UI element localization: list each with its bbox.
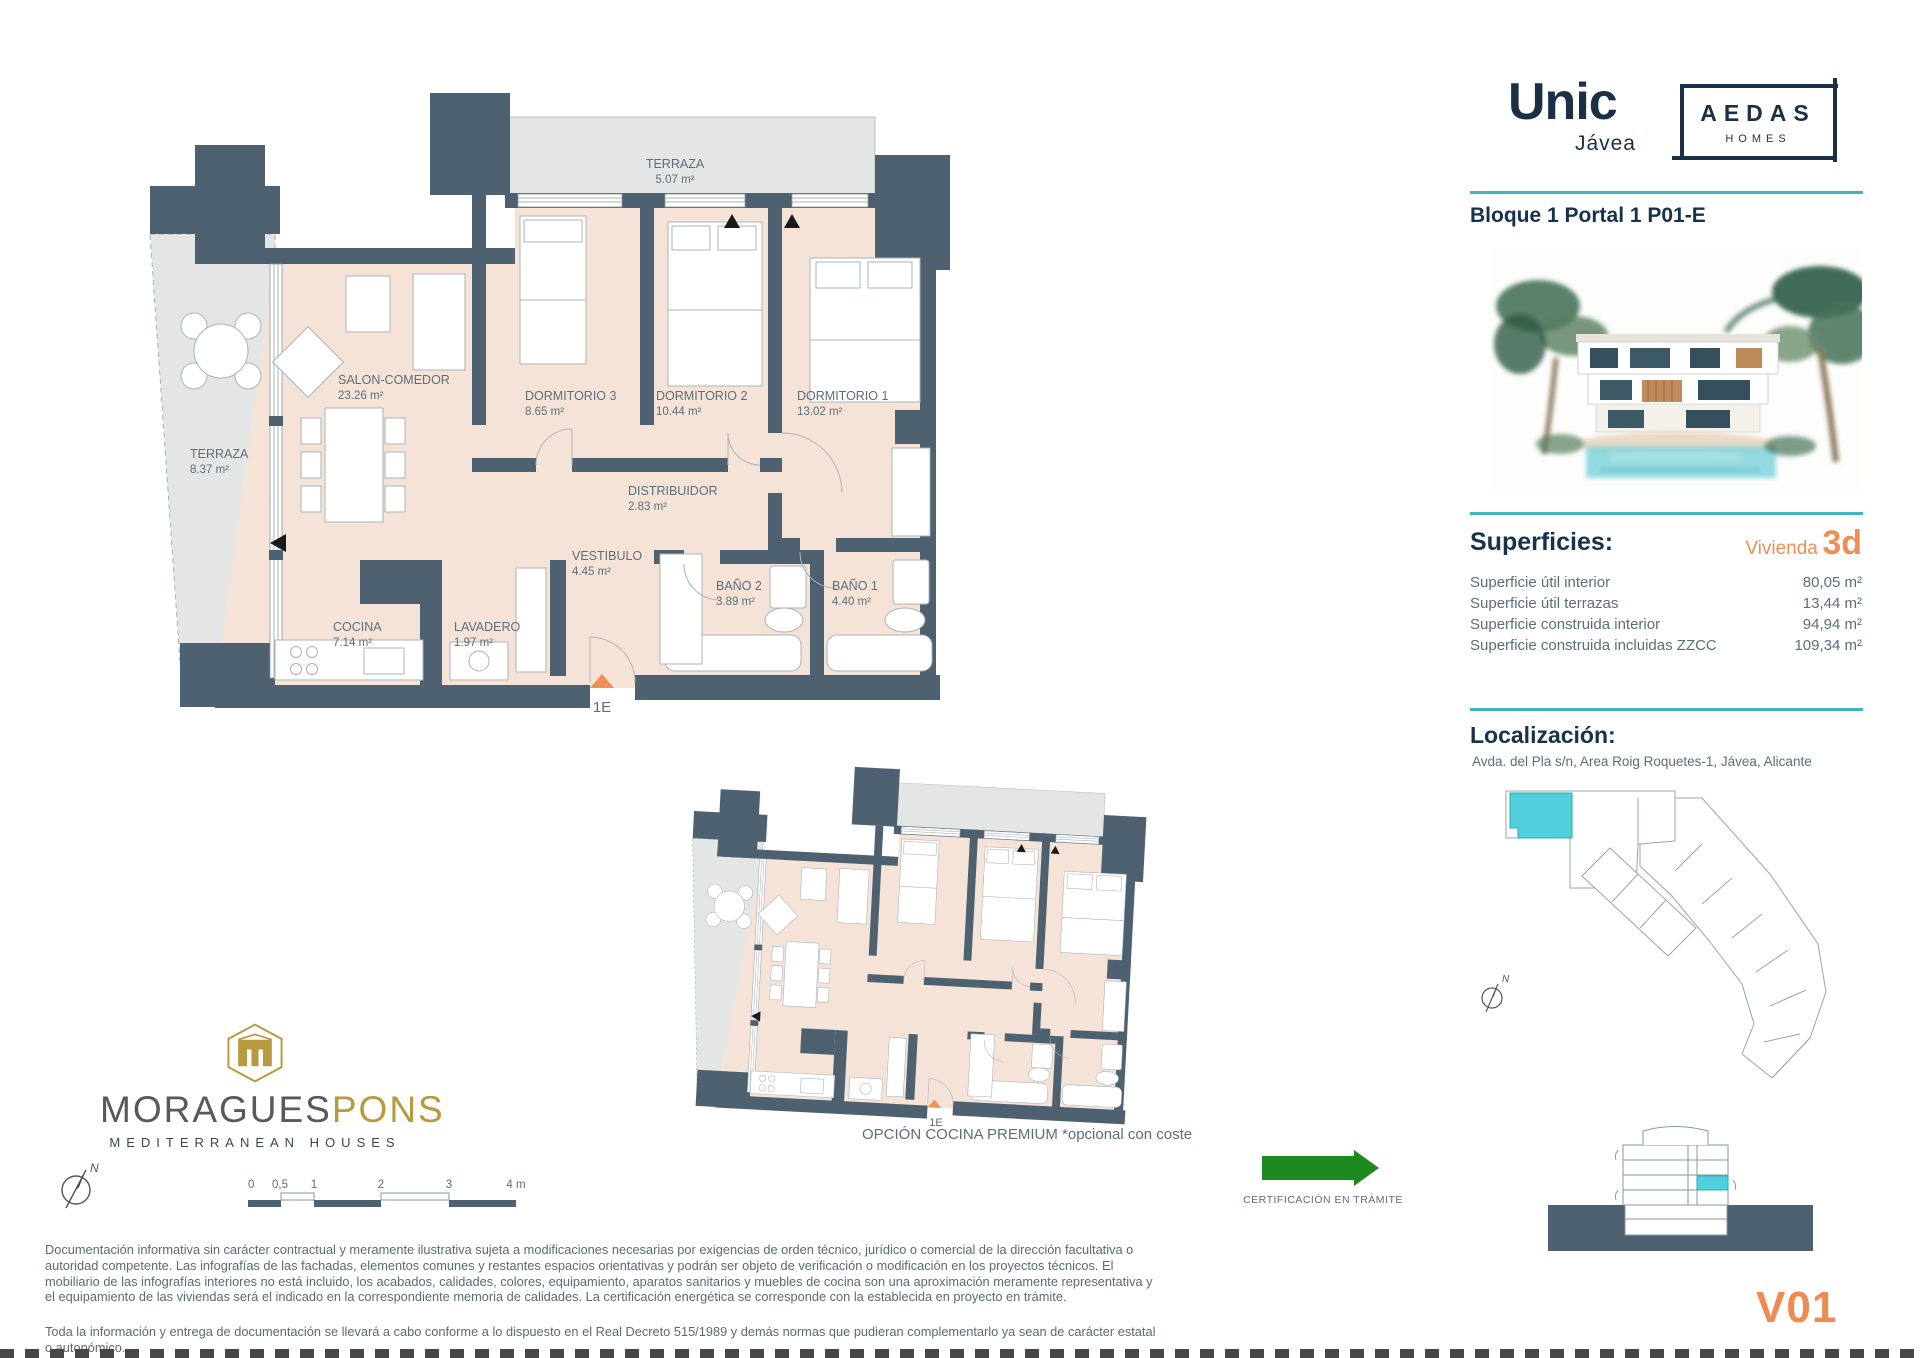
compass-icon: N (52, 1160, 108, 1216)
superficie-label: Superficie útil interior (1470, 572, 1610, 593)
entrance-label: 1E (593, 699, 611, 716)
room-label-terraza-top: TERRAZA (646, 157, 705, 171)
room-area-vestibulo: 4.45 m² (572, 566, 611, 578)
superficie-label: Superficie construida incluidas ZZCC (1470, 635, 1717, 656)
perforation-strip (0, 1349, 1920, 1358)
superficie-value: 94,94 m² (1803, 614, 1862, 635)
certification-label: CERTIFICACIÓN EN TRÁMITE (1238, 1194, 1408, 1206)
room-label-bano2: BAÑO 2 (716, 579, 762, 593)
room-area-dormitorio1: 13.02 m² (797, 406, 843, 418)
divider (1470, 512, 1863, 515)
room-label-terraza-left: TERRAZA (190, 447, 249, 461)
scale-bar: 0 0,5 1 2 3 4 m (246, 1176, 538, 1218)
superficie-value: 80,05 m² (1803, 572, 1862, 593)
vivienda-code: 3d (1822, 524, 1862, 562)
highlighted-unit (1510, 793, 1572, 838)
localizacion-heading: Localización: (1470, 722, 1616, 749)
disclaimer-paragraph-1: Documentación informativa sin carácter c… (45, 1242, 1157, 1305)
building-block (1576, 334, 1780, 432)
superficie-row: Superficie construida interior 94,94 m² (1470, 614, 1862, 635)
logo-part2: PONS (332, 1089, 445, 1130)
superficie-label: Superficie construida interior (1470, 614, 1660, 635)
room-area-bano2: 3.89 m² (716, 596, 755, 608)
room-area-salon: 23.26 m² (338, 390, 384, 402)
superficies-heading: Superficies: (1470, 528, 1613, 557)
room-area-terraza-top: 5.07 m² (656, 174, 695, 186)
logo-part1: MORAGUES (100, 1089, 332, 1130)
building-render (1490, 248, 1862, 492)
superficie-value: 13,44 m² (1803, 593, 1862, 614)
premium-floor-plan: 1E (640, 742, 1185, 1162)
compass-icon: N (1482, 974, 1510, 1012)
north-label: N (90, 1161, 99, 1175)
certification-arrow-icon (1262, 1150, 1380, 1186)
room-label-salon: SALON-COMEDOR (338, 373, 450, 387)
logo-tagline: MEDITERRANEAN HOUSES (100, 1135, 410, 1150)
vivienda-tag: Vivienda 3d (1640, 524, 1862, 563)
scale-tick: 0 (248, 1179, 254, 1191)
superficie-row: Superficie útil interior 80,05 m² (1470, 572, 1862, 593)
room-area-dormitorio3: 8.65 m² (525, 406, 564, 418)
room-label-bano1: BAÑO 1 (832, 579, 878, 593)
scale-tick: 0,5 (272, 1179, 288, 1191)
building-section (1540, 1098, 1830, 1266)
north-label: N (1502, 974, 1510, 985)
aedas-homes-logo: AEDAS HOMES (1672, 74, 1852, 174)
superficie-label: Superficie útil terrazas (1470, 593, 1618, 614)
room-label-vestibulo: VESTIBULO (572, 549, 642, 563)
room-label-distribuidor: DISTRIBUIDOR (628, 484, 718, 498)
localizacion-address: Avda. del Pla s/n, Area Roig Roquetes-1,… (1472, 754, 1812, 769)
project-city: Jávea (1508, 132, 1636, 156)
vivienda-label: Vivienda (1745, 538, 1818, 559)
moraguespons-logo: MORAGUESPONS MEDITERRANEAN HOUSES (100, 1022, 410, 1150)
scale-tick: 1 (311, 1179, 317, 1191)
room-area-cocina: 7.14 m² (333, 637, 372, 649)
room-area-dormitorio2: 10.44 m² (656, 406, 702, 418)
brand-sub: HOMES (1725, 133, 1790, 145)
room-area-terraza-left: 8.37 m² (190, 464, 229, 476)
scale-tick: 2 (378, 1179, 384, 1191)
room-label-dormitorio2: DORMITORIO 2 (656, 389, 747, 403)
version-label: V01 (1756, 1283, 1837, 1333)
site-plan: N (1470, 786, 1870, 1091)
room-label-lavadero: LAVADERO (454, 620, 521, 634)
highlighted-floor-unit (1697, 1176, 1728, 1190)
superficie-row: Superficie construida incluidas ZZCC 109… (1470, 635, 1862, 656)
room-label-dormitorio1: DORMITORIO 1 (797, 389, 888, 403)
moraguespons-emblem-icon (224, 1022, 286, 1084)
room-area-distribuidor: 2.83 m² (628, 501, 667, 513)
superficie-row: Superficie útil terrazas 13,44 m² (1470, 593, 1862, 614)
divider (1470, 191, 1863, 194)
unit-title: Bloque 1 Portal 1 P01-E (1470, 204, 1706, 228)
room-area-bano1: 4.40 m² (832, 596, 871, 608)
room-label-cocina: COCINA (333, 620, 382, 634)
brand-name: AEDAS (1700, 100, 1816, 126)
scale-tick: 3 (446, 1179, 452, 1191)
divider (1470, 708, 1863, 711)
project-logo: Unic Jávea (1508, 76, 1636, 156)
premium-caption: OPCIÓN COCINA PREMIUM *opcional con cost… (862, 1126, 1192, 1143)
project-name: Unic (1508, 76, 1636, 128)
superficie-value: 109,34 m² (1794, 635, 1862, 656)
main-floor-plan: TERRAZA 5.07 m² SALON-COMEDOR 23.26 m² D… (120, 90, 970, 760)
superficies-table: Superficie útil interior 80,05 m² Superf… (1470, 572, 1862, 656)
moraguespons-wordmark: MORAGUESPONS (100, 1089, 410, 1131)
room-label-dormitorio3: DORMITORIO 3 (525, 389, 616, 403)
room-area-lavadero: 1.97 m² (454, 637, 493, 649)
scale-tick: 4 m (506, 1179, 525, 1191)
plan-sheet-page: TERRAZA 5.07 m² SALON-COMEDOR 23.26 m² D… (0, 0, 1920, 1358)
